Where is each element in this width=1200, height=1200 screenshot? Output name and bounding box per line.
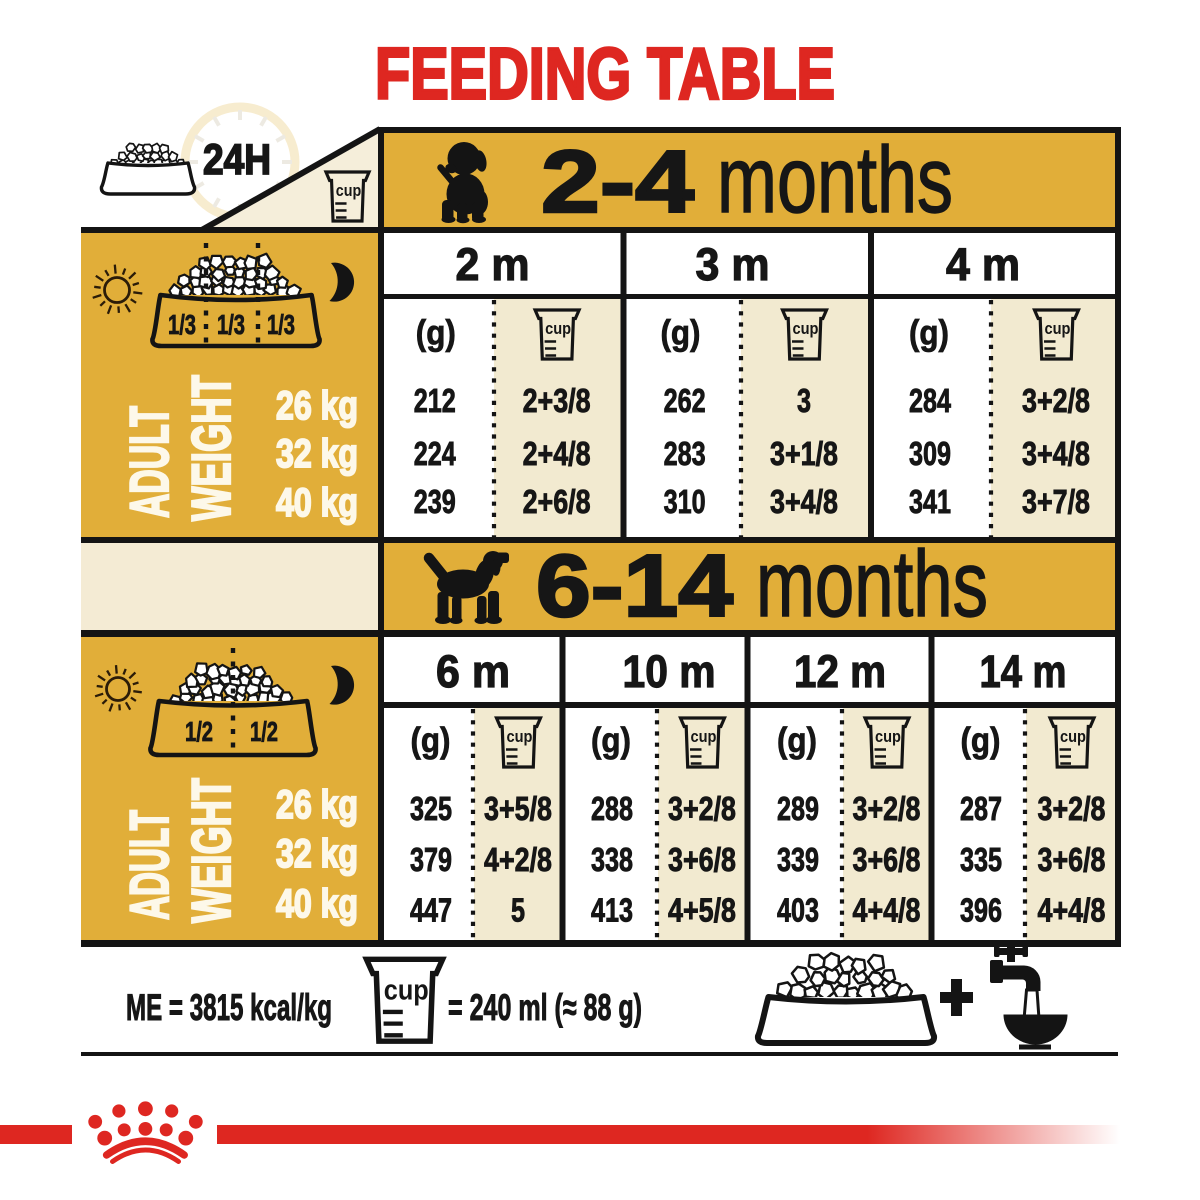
svg-text:4 m: 4 m bbox=[946, 239, 1020, 290]
svg-text:310: 310 bbox=[664, 483, 706, 520]
svg-text:(g): (g) bbox=[961, 721, 1001, 760]
svg-text:3+6/8: 3+6/8 bbox=[853, 841, 921, 878]
svg-text:2-4: 2-4 bbox=[541, 132, 694, 231]
svg-text:32 kg: 32 kg bbox=[276, 832, 358, 876]
svg-text:32 kg: 32 kg bbox=[276, 432, 358, 476]
svg-text:447: 447 bbox=[410, 892, 452, 929]
svg-text:413: 413 bbox=[591, 892, 633, 929]
svg-text:FEEDING TABLE: FEEDING TABLE bbox=[375, 34, 835, 115]
svg-text:ADULT: ADULT bbox=[118, 406, 180, 518]
svg-text:335: 335 bbox=[960, 841, 1002, 878]
svg-text:2+6/8: 2+6/8 bbox=[523, 483, 591, 520]
svg-text:1/2: 1/2 bbox=[185, 716, 213, 747]
svg-text:5: 5 bbox=[511, 892, 525, 929]
svg-text:3+2/8: 3+2/8 bbox=[1038, 790, 1106, 827]
svg-text:224: 224 bbox=[414, 435, 456, 472]
svg-text:4+5/8: 4+5/8 bbox=[668, 892, 736, 929]
svg-text:212: 212 bbox=[414, 382, 456, 419]
svg-text:6 m: 6 m bbox=[436, 646, 510, 697]
svg-text:months: months bbox=[756, 531, 988, 636]
svg-text:338: 338 bbox=[591, 841, 633, 878]
svg-text:ADULT: ADULT bbox=[118, 810, 180, 920]
svg-text:396: 396 bbox=[960, 892, 1002, 929]
svg-text:3+1/8: 3+1/8 bbox=[770, 435, 838, 472]
svg-text:2+3/8: 2+3/8 bbox=[523, 382, 591, 419]
svg-text:283: 283 bbox=[664, 435, 706, 472]
svg-text:3+5/8: 3+5/8 bbox=[484, 790, 552, 827]
svg-text:12 m: 12 m bbox=[794, 646, 886, 697]
svg-text:1/3: 1/3 bbox=[168, 309, 196, 340]
svg-text:40 kg: 40 kg bbox=[276, 481, 358, 525]
svg-text:3+2/8: 3+2/8 bbox=[853, 790, 921, 827]
svg-text:1/3: 1/3 bbox=[267, 309, 295, 340]
svg-text:3+2/8: 3+2/8 bbox=[668, 790, 736, 827]
svg-text:= 240 ml (≈ 88 g): = 240 ml (≈ 88 g) bbox=[448, 987, 642, 1028]
svg-text:325: 325 bbox=[410, 790, 452, 827]
svg-text:4+2/8: 4+2/8 bbox=[484, 841, 552, 878]
svg-text:379: 379 bbox=[410, 841, 452, 878]
svg-text:WEIGHT: WEIGHT bbox=[180, 375, 242, 521]
svg-text:(g): (g) bbox=[661, 314, 701, 353]
svg-text:339: 339 bbox=[777, 841, 819, 878]
svg-text:6-14: 6-14 bbox=[536, 536, 733, 635]
svg-text:288: 288 bbox=[591, 790, 633, 827]
svg-text:months: months bbox=[717, 127, 953, 232]
svg-text:(g): (g) bbox=[411, 721, 451, 760]
svg-text:403: 403 bbox=[777, 892, 819, 929]
svg-text:1/2: 1/2 bbox=[250, 716, 278, 747]
svg-text:40 kg: 40 kg bbox=[276, 882, 358, 926]
svg-text:3+2/8: 3+2/8 bbox=[1022, 382, 1090, 419]
svg-text:(g): (g) bbox=[416, 314, 456, 353]
svg-text:3+4/8: 3+4/8 bbox=[770, 483, 838, 520]
svg-text:239: 239 bbox=[414, 483, 456, 520]
svg-text:4+4/8: 4+4/8 bbox=[1038, 892, 1106, 929]
svg-text:26 kg: 26 kg bbox=[276, 783, 358, 827]
svg-text:287: 287 bbox=[960, 790, 1002, 827]
svg-text:341: 341 bbox=[909, 483, 951, 520]
svg-text:3: 3 bbox=[797, 382, 811, 419]
svg-text:ME = 3815 kcal/kg: ME = 3815 kcal/kg bbox=[126, 987, 332, 1028]
svg-text:289: 289 bbox=[777, 790, 819, 827]
svg-text:14 m: 14 m bbox=[980, 646, 1067, 697]
svg-text:284: 284 bbox=[909, 382, 951, 419]
svg-text:1/3: 1/3 bbox=[217, 309, 245, 340]
svg-text:4+4/8: 4+4/8 bbox=[853, 892, 921, 929]
svg-text:(g): (g) bbox=[591, 721, 631, 760]
svg-text:WEIGHT: WEIGHT bbox=[180, 778, 242, 923]
svg-text:3+6/8: 3+6/8 bbox=[668, 841, 736, 878]
svg-text:262: 262 bbox=[664, 382, 706, 419]
svg-text:(g): (g) bbox=[777, 721, 817, 760]
svg-text:26 kg: 26 kg bbox=[276, 384, 358, 428]
svg-text:3 m: 3 m bbox=[696, 239, 770, 290]
svg-text:10 m: 10 m bbox=[623, 646, 716, 697]
svg-text:3+4/8: 3+4/8 bbox=[1022, 435, 1090, 472]
svg-text:2+4/8: 2+4/8 bbox=[523, 435, 591, 472]
svg-text:2 m: 2 m bbox=[456, 239, 530, 290]
svg-text:(g): (g) bbox=[909, 314, 949, 353]
svg-text:309: 309 bbox=[909, 435, 951, 472]
svg-text:24H: 24H bbox=[203, 136, 271, 184]
svg-text:3+7/8: 3+7/8 bbox=[1022, 483, 1090, 520]
svg-text:3+6/8: 3+6/8 bbox=[1038, 841, 1106, 878]
